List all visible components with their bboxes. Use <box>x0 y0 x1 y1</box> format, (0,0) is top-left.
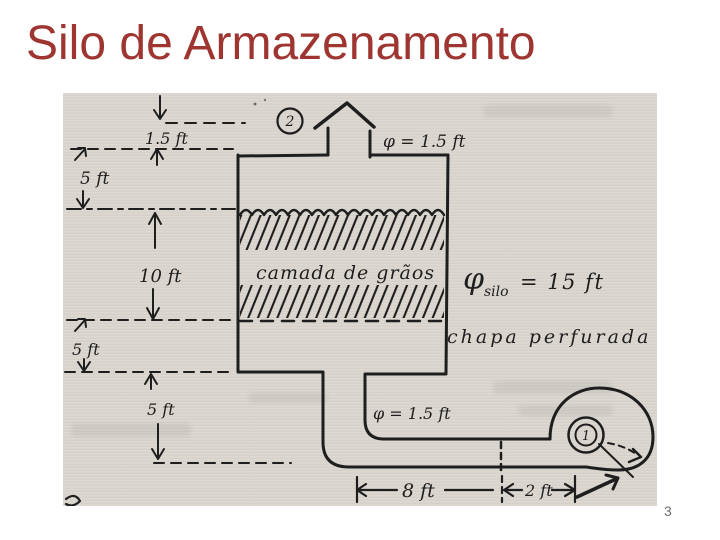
silo-diagram-svg: camada de grãos 1 2 φ = 1.5 ft <box>63 93 657 506</box>
left-dimension-labels: 1.5 ft 5 ft 10 ft 5 ft 5 ft <box>72 129 188 419</box>
silo-roof <box>238 155 448 156</box>
blower-pointer-line <box>599 444 633 477</box>
grain-surface-bumps <box>240 210 444 215</box>
freeboard-label: 5 ft <box>80 169 110 189</box>
blower-offset-label: 2 ft <box>524 481 553 500</box>
outlet-drop-label: 5 ft <box>147 400 175 419</box>
air-inlet-arrow <box>577 479 616 497</box>
grain-depth-arrow-down <box>147 289 159 319</box>
airflow-up-chevron <box>315 103 374 128</box>
slide-title: Silo de Armazenamento <box>26 16 536 71</box>
freeboard-arrow-down <box>77 191 89 208</box>
silo-diameter-symbol: φ <box>463 262 484 297</box>
dim-arrow-left-2ft <box>504 484 522 496</box>
plenum-depth-label: 5 ft <box>72 340 100 359</box>
blower: 1 <box>550 388 653 497</box>
grain-hatch-lower <box>240 285 444 318</box>
vent-diameter-label: φ = 1.5 ft <box>383 132 466 152</box>
grain-layers: camada de grãos <box>240 210 444 321</box>
duct-length-label: 8 ft <box>402 480 435 502</box>
ink-speck <box>264 99 266 101</box>
grain-depth-label: 10 ft <box>139 266 182 287</box>
dim-arrow-right-2ft <box>552 484 575 496</box>
perforated-plate-label: chapa perfurada <box>447 326 651 348</box>
ink-speck <box>254 103 257 106</box>
grain-hatch-upper <box>240 215 444 250</box>
vent-height-arrow-up <box>151 149 163 165</box>
right-annotations: φ silo = 15 ft chapa perfurada <box>447 262 651 348</box>
vent-height-arrow-down <box>154 96 166 119</box>
scanned-sketch: camada de grãos 1 2 φ = 1.5 ft <box>63 93 657 506</box>
page-number: 3 <box>664 503 672 519</box>
vent-height-label: 1.5 ft <box>145 129 188 148</box>
plenum-arrow-down <box>78 359 90 371</box>
slide: Silo de Armazenamento <box>0 0 720 540</box>
top-annotations: 2 φ = 1.5 ft <box>254 99 466 152</box>
airflow-pointer-dashed <box>608 443 636 454</box>
vent-marker-label: 2 <box>285 114 295 130</box>
grain-depth-arrow-up <box>149 213 161 248</box>
bottom-annotations: φ = 1.5 ft 8 ft 2 ft <box>357 404 575 502</box>
silo-diameter-value: = 15 ft <box>520 270 604 294</box>
duct-diameter-label: φ = 1.5 ft <box>373 404 451 423</box>
silo-diameter-subscript: silo <box>484 284 509 300</box>
blower-marker-label: 1 <box>582 429 590 444</box>
corner-scribble <box>66 496 80 506</box>
vent-stub <box>328 128 370 157</box>
grain-layer-label: camada de grãos <box>256 262 435 284</box>
outlet-arrow-up <box>145 374 157 389</box>
dim-arrow-left-8ft <box>357 484 397 496</box>
